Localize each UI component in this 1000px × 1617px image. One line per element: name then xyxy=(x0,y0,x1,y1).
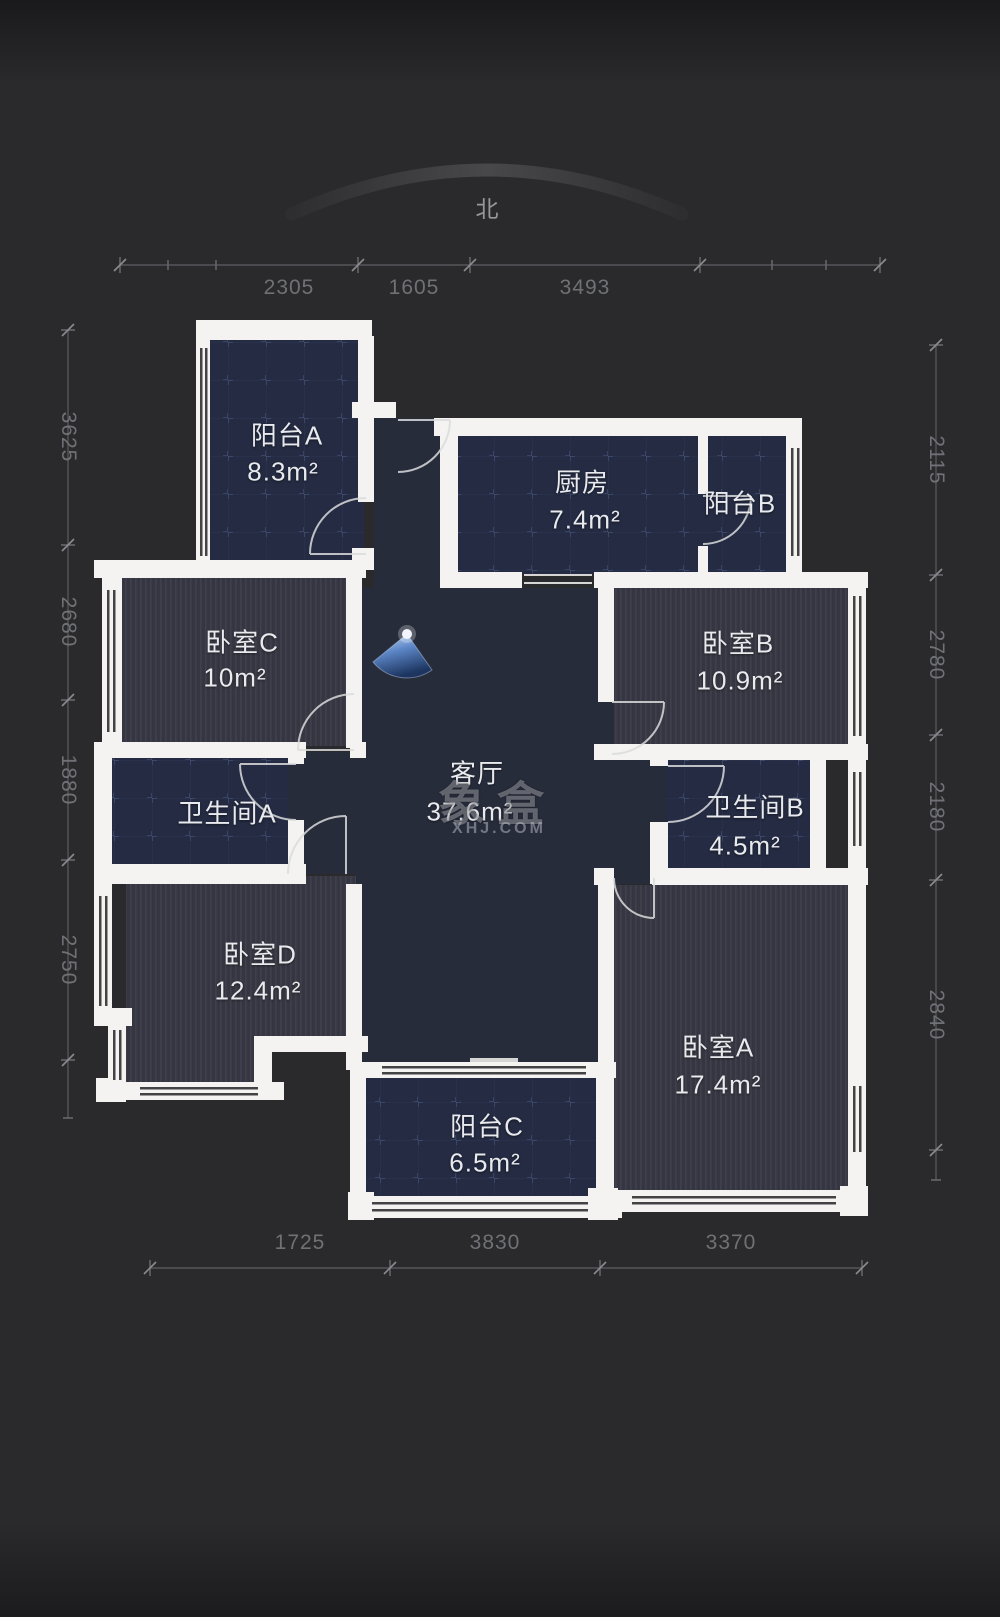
dim-label-bottom-1: 3830 xyxy=(470,1231,521,1255)
dim-label-right-3: 2840 xyxy=(924,990,948,1041)
dim-label-bottom-0: 1725 xyxy=(275,1231,326,1255)
room-area-bedroom-b: 10.9m² xyxy=(697,666,784,697)
dim-label-left-1: 2680 xyxy=(56,597,80,648)
compass-north-label: 北 xyxy=(476,190,499,224)
dim-label-left-0: 3625 xyxy=(56,412,80,463)
room-area-bedroom-d: 12.4m² xyxy=(215,976,302,1007)
room-label-balcony-a: 阳台A xyxy=(251,416,323,453)
room-label-bedroom-c: 卧室C xyxy=(205,623,279,660)
watermark-domain: XHJ.COM xyxy=(452,820,546,838)
dim-label-top-2: 3493 xyxy=(560,276,611,300)
room-area-bedroom-a: 17.4m² xyxy=(675,1070,762,1101)
dim-label-right-1: 2780 xyxy=(924,630,948,681)
room-label-kitchen: 厨房 xyxy=(555,463,609,500)
room-area-balcony-c: 6.5m² xyxy=(449,1148,520,1179)
room-label-balcony-b: 阳台B xyxy=(704,484,776,521)
floor-entry xyxy=(374,418,444,592)
room-label-bedroom-b: 卧室B xyxy=(702,624,774,661)
dim-label-right-0: 2115 xyxy=(924,435,948,484)
room-label-bedroom-a: 卧室A xyxy=(682,1028,754,1065)
room-area-bath-b: 4.5m² xyxy=(709,831,780,862)
dim-label-left-3: 2750 xyxy=(56,935,80,986)
room-area-kitchen: 7.4m² xyxy=(549,505,620,536)
room-label-bath-b: 卫生间B xyxy=(705,788,804,825)
room-label-balcony-c: 阳台C xyxy=(450,1107,524,1144)
dim-label-top-0: 2305 xyxy=(264,276,315,300)
room-label-bedroom-d: 卧室D xyxy=(223,935,297,972)
dim-label-bottom-2: 3370 xyxy=(706,1231,757,1255)
room-area-bedroom-c: 10m² xyxy=(203,663,266,694)
room-label-bath-a: 卫生间A xyxy=(177,794,276,831)
dim-label-right-2: 2180 xyxy=(924,782,948,833)
dim-label-top-1: 1605 xyxy=(389,276,440,300)
dim-label-left-2: 1880 xyxy=(56,755,80,806)
room-area-balcony-a: 8.3m² xyxy=(247,457,318,488)
